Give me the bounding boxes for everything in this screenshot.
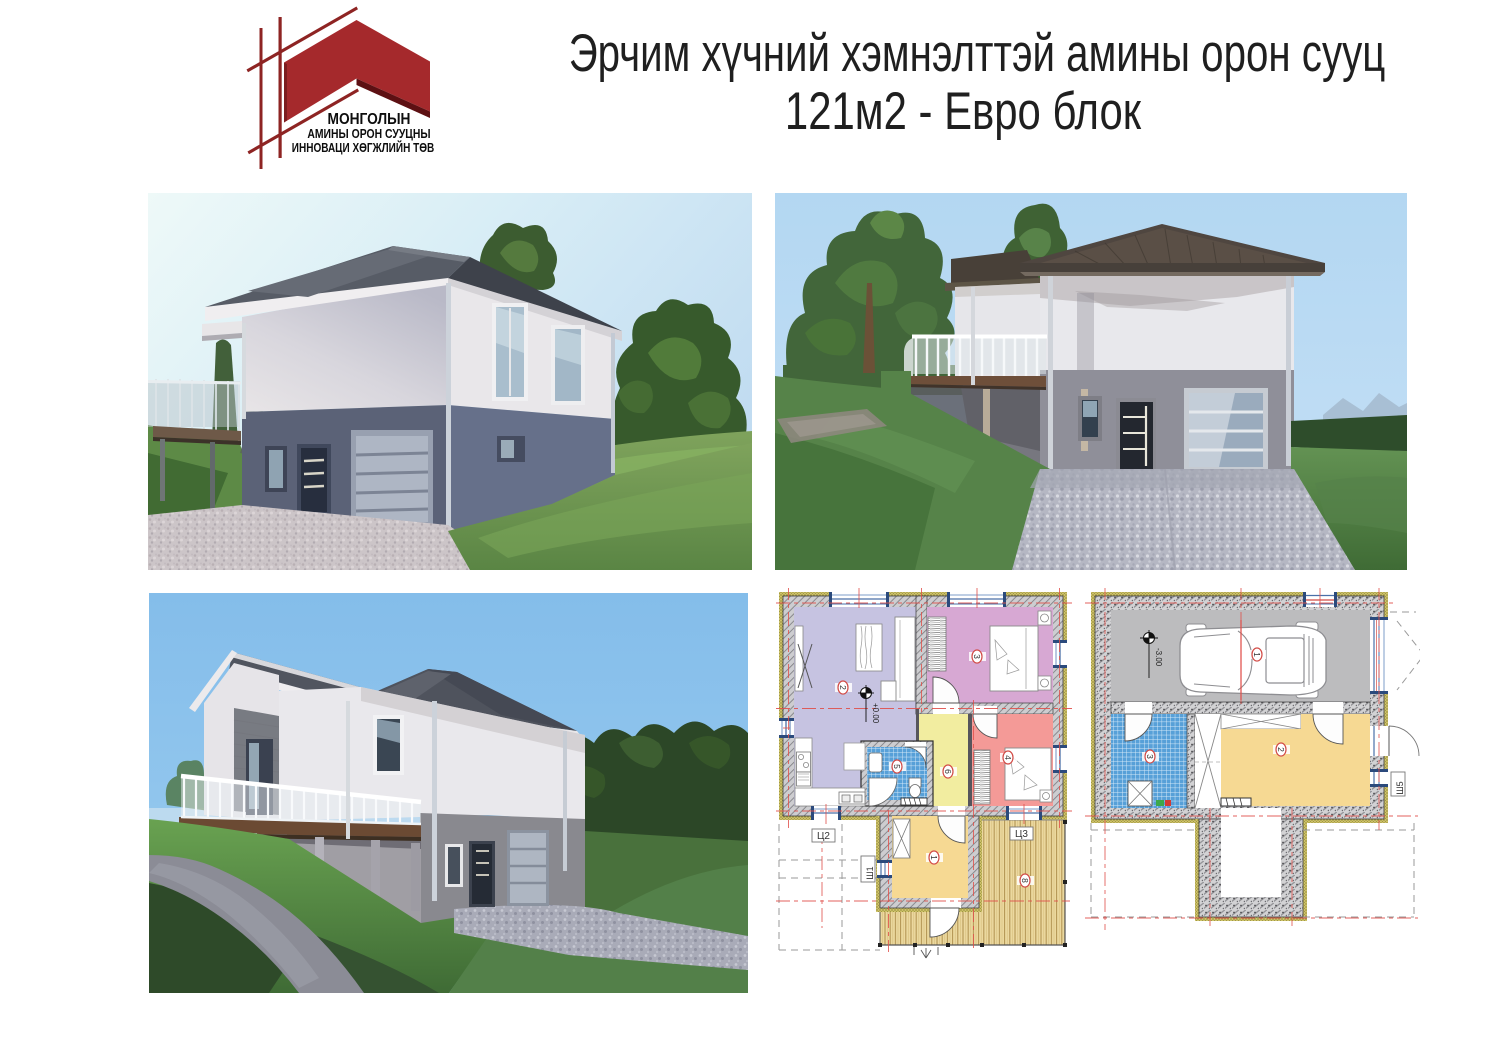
svg-text:Ц2: Ц2 [817,831,830,842]
svg-text:2: 2 [838,685,848,690]
svg-text:3: 3 [1145,754,1155,759]
svg-text:Ц3: Ц3 [1015,829,1028,840]
svg-text:4: 4 [1003,755,1013,760]
svg-text:-3.00: -3.00 [1154,648,1163,667]
svg-text:3: 3 [972,654,982,659]
svg-text:+0.00: +0.00 [871,703,880,724]
svg-text:5: 5 [892,764,902,769]
svg-text:8: 8 [1020,878,1030,883]
svg-text:Ш1: Ш1 [865,866,875,879]
svg-text:Ш5: Ш5 [1395,781,1405,794]
svg-text:2: 2 [1276,747,1286,752]
svg-text:6: 6 [943,769,953,774]
svg-text:1: 1 [1252,652,1262,657]
svg-text:1: 1 [929,855,939,860]
